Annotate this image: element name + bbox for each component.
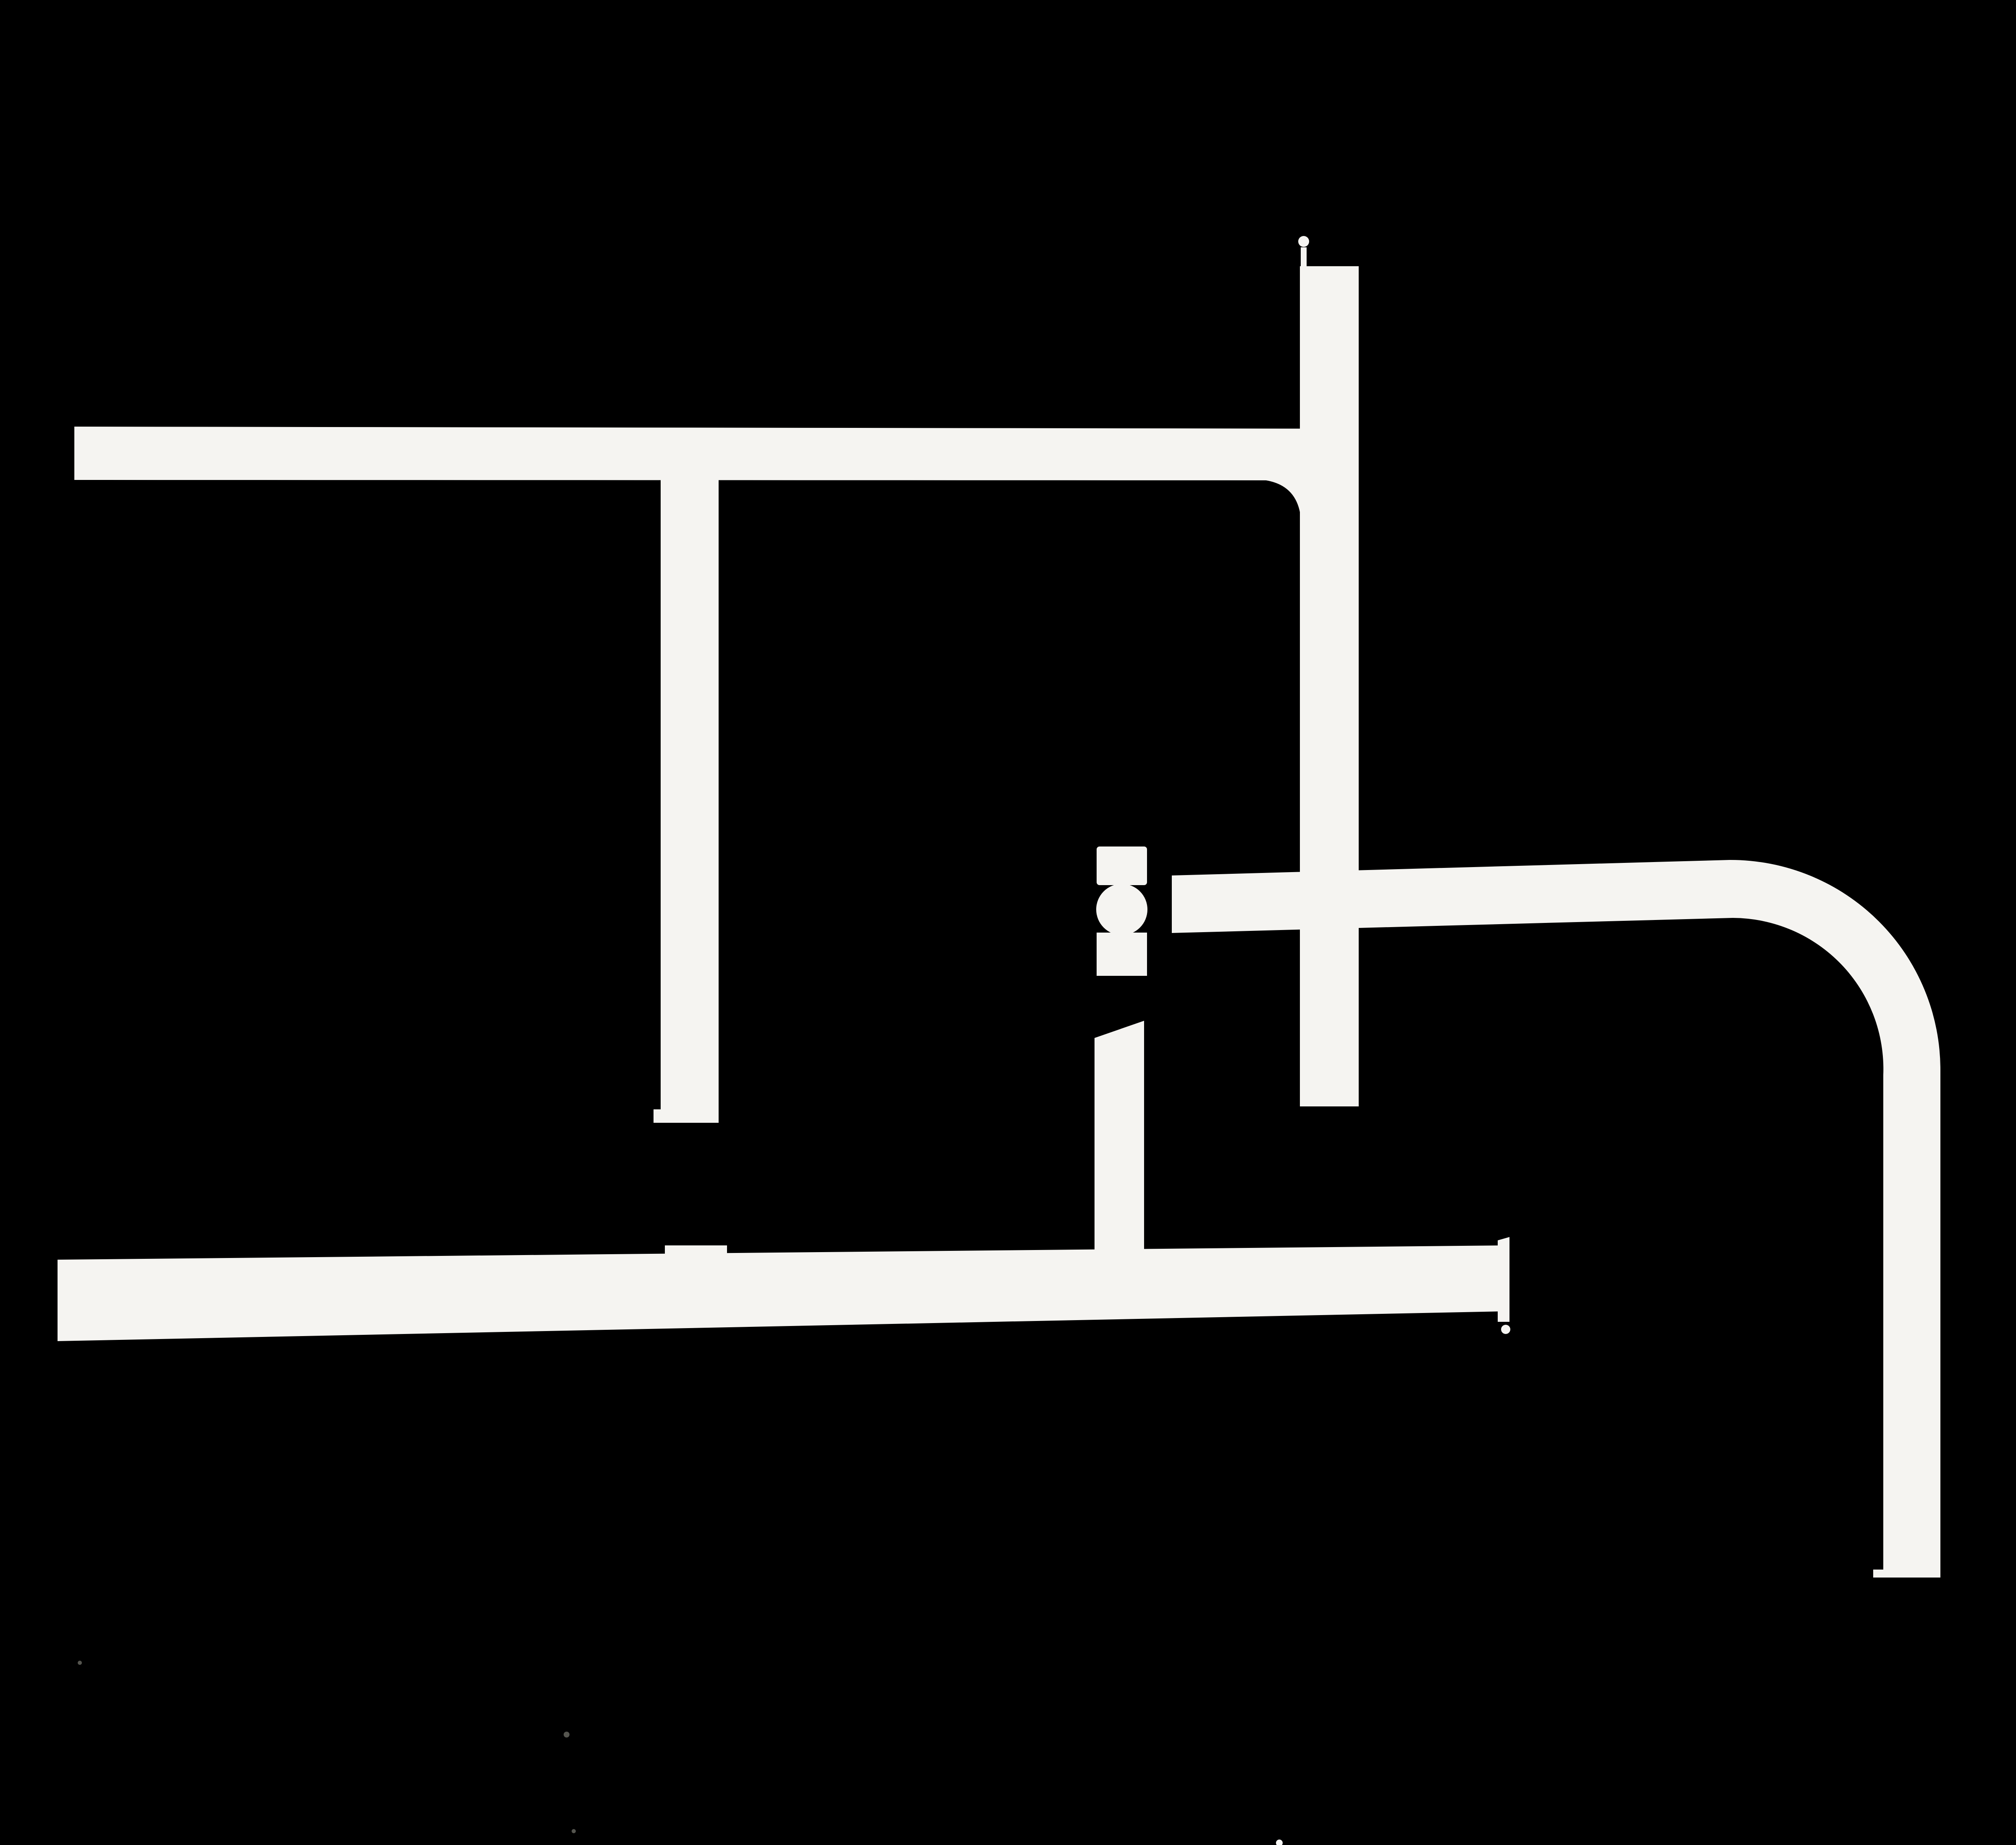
dust-speck-2 bbox=[78, 1661, 82, 1665]
spool-ball bbox=[1096, 884, 1147, 935]
elbow-bottom-foot bbox=[1873, 1570, 1884, 1578]
right-bar-top-dot bbox=[1298, 236, 1309, 247]
end-cap-drip-dot bbox=[1501, 1325, 1510, 1334]
left-stem-foot bbox=[654, 1109, 670, 1123]
left-vertical-stem bbox=[661, 474, 719, 1123]
background-field bbox=[0, 0, 2016, 1845]
dust-speck-3 bbox=[572, 1829, 576, 1833]
dust-speck-1 bbox=[564, 1732, 570, 1738]
top-horizontal-bar bbox=[74, 427, 1359, 480]
right-bar-top-tick bbox=[1301, 247, 1307, 268]
bottom-bar-nub bbox=[665, 1245, 727, 1263]
spool-bottom-block bbox=[1097, 933, 1147, 976]
figure-svg bbox=[0, 0, 2016, 1845]
spool-top-block bbox=[1097, 846, 1147, 885]
center-vertical-stem bbox=[1095, 1021, 1144, 1264]
right-vertical-bar bbox=[1300, 266, 1359, 1106]
abstract-figure-canvas: Abstract monochrome composition: off-whi… bbox=[0, 0, 2016, 1845]
bottom-bar-end-cap bbox=[1498, 1237, 1509, 1322]
